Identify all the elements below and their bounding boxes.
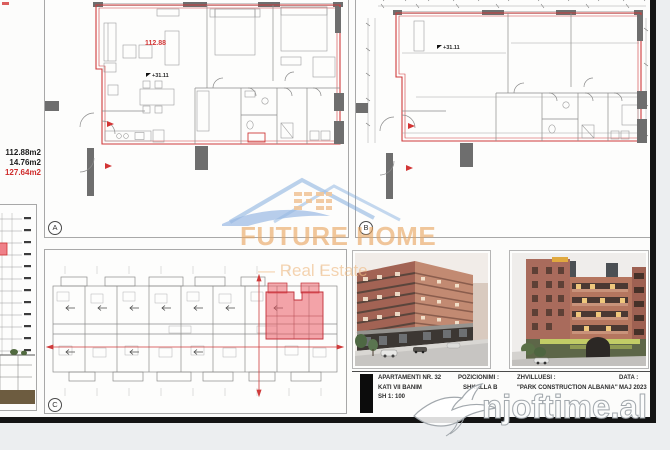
plan-b-tag: B [359, 221, 373, 235]
building-render-street-view [352, 250, 491, 369]
sheet-border-bottom [0, 417, 656, 423]
position-value: SHKALLA B [458, 384, 499, 394]
title-block-developer: ZHVILLUESI : "PARK CONSTRUCTION ALBANIA" [517, 374, 618, 393]
plan-b-elevation: +31.11 [437, 45, 460, 51]
section-floor-highlight [0, 243, 7, 255]
apartment-scale: SH 1: 100 [378, 393, 441, 403]
developer-value: "PARK CONSTRUCTION ALBANIA" [517, 384, 618, 394]
plan-a-drawing [45, 0, 348, 237]
title-block-divider [352, 371, 651, 372]
title-block-date: DATA : MAJ 2023 [619, 374, 647, 393]
area-total-label: 127.64m2 [0, 168, 41, 177]
plan-b-drawing [356, 0, 651, 237]
render-left-canvas [355, 253, 488, 366]
plan-a-area-text: 112.88 [145, 40, 166, 47]
level-marker-icon [146, 73, 151, 77]
apartment-floor: KATI VII BANIM [378, 384, 441, 394]
red-tick-mark [2, 2, 9, 5]
plan-c-frame [44, 249, 347, 414]
plan-a-frame [44, 0, 349, 238]
building-section-drawing [0, 204, 37, 411]
date-label: DATA : [619, 374, 647, 384]
date-value: MAJ 2023 [619, 384, 647, 394]
level-marker-icon [437, 45, 442, 49]
apartment-number: APARTAMENTI NR. 32 [378, 374, 441, 384]
sheet-border-right [650, 0, 656, 423]
real-estate-listing-image: 112.88m2 14.76m2 127.64m2 [0, 0, 670, 450]
area-net-label: 112.88m2 [0, 148, 41, 157]
section-drawing-canvas [0, 205, 35, 410]
plan-c-tag: C [48, 398, 62, 412]
render-right-canvas [512, 253, 646, 366]
plan-c-drawing [45, 250, 346, 413]
plan-a-elevation: +31.11 [146, 73, 169, 79]
area-balcony-label: 14.76m2 [0, 158, 41, 167]
title-block-marker [360, 374, 373, 413]
position-label: POZICIONIMI : [458, 374, 499, 384]
plan-b-frame [355, 0, 652, 238]
developer-label: ZHVILLUESI : [517, 374, 618, 384]
building-render-entrance-view [509, 250, 649, 369]
title-block-apartment: APARTAMENTI NR. 32 KATI VII BANIM SH 1: … [378, 374, 441, 403]
title-block-position: POZICIONIMI : SHKALLA B [458, 374, 499, 393]
highlighted-unit [266, 283, 323, 339]
plan-a-tag: A [48, 221, 62, 235]
